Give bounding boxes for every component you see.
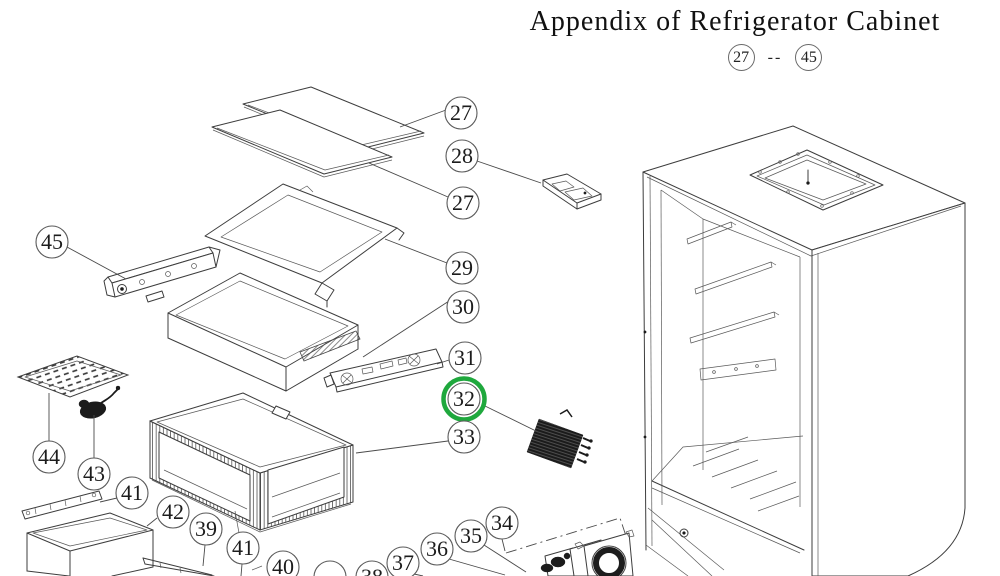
part-31-control-board	[324, 349, 443, 392]
cabinet-floor-vents	[652, 436, 804, 553]
callout-34[interactable]: 34	[486, 507, 518, 551]
leader-line	[147, 518, 157, 526]
part-41-rail-upper	[22, 491, 102, 519]
refrigerator-cabinet-drawing	[643, 126, 965, 576]
callout-number: 27	[452, 190, 474, 215]
leader-line	[449, 559, 505, 575]
callout-44[interactable]: 44	[33, 393, 65, 473]
leader-line	[100, 498, 117, 502]
callout-number: 44	[38, 444, 60, 469]
callout-circle	[314, 561, 346, 576]
leader-line	[477, 161, 541, 183]
part-32-evaporator	[527, 410, 593, 468]
callout-43[interactable]: 43	[78, 415, 110, 490]
leader-line	[67, 247, 126, 279]
callout-number: 40	[272, 554, 294, 576]
callout-33[interactable]: 33	[356, 421, 480, 453]
callout-number: 38	[361, 564, 383, 576]
callout-38[interactable]: 38	[356, 561, 388, 576]
cabinet-base	[646, 508, 724, 576]
callout-number: 39	[195, 516, 217, 541]
callout-31[interactable]: 31	[437, 342, 481, 374]
callout-number: 36	[426, 536, 448, 561]
callout-number: 42	[162, 499, 184, 524]
fan-assembly	[506, 518, 634, 576]
callout-number: 27	[450, 100, 472, 125]
parts-diagram-page: Appendix of Refrigerator Cabinet 27 -- 4…	[0, 0, 1000, 576]
leader-line	[203, 545, 205, 566]
callout-39[interactable]: 39	[190, 513, 222, 566]
callout-number: 41	[232, 535, 254, 560]
callout-number: 28	[451, 143, 473, 168]
leader-line	[400, 110, 446, 127]
leader-line	[356, 441, 448, 453]
part-44-grid-plate	[18, 356, 128, 397]
callout-45[interactable]: 45	[36, 226, 126, 279]
interior-shelf-rails	[687, 222, 779, 343]
callout-29[interactable]: 29	[385, 239, 478, 284]
leader-line	[485, 406, 538, 432]
callout-number: 35	[460, 523, 482, 548]
callout-28[interactable]: 28	[446, 140, 541, 183]
part-42-bin	[27, 513, 153, 576]
callout-number: 30	[452, 294, 474, 319]
callout-number: 33	[453, 424, 475, 449]
callout-number: 41	[121, 480, 143, 505]
leader-line	[369, 163, 448, 197]
callout-number: 37	[392, 550, 414, 575]
leader-line	[385, 239, 447, 263]
part-28-cover-board	[543, 174, 601, 209]
leader-line	[484, 545, 526, 572]
exploded-view-diagram: 2728272930313233454443414239414038373635…	[0, 0, 1000, 576]
callout-number: 45	[41, 229, 63, 254]
callout-number: 29	[451, 255, 473, 280]
callout-number: 32	[453, 386, 475, 411]
callout-number: 43	[83, 461, 105, 486]
callout-number: 34	[491, 510, 513, 535]
callout-42[interactable]: 42	[147, 496, 189, 528]
callout-number: 31	[454, 345, 476, 370]
callout-37[interactable]: 37	[387, 547, 423, 576]
back-wall-bracket	[700, 359, 776, 380]
leader-line	[502, 539, 505, 551]
callout-unlabeled[interactable]	[314, 561, 346, 576]
callout-40[interactable]: 40	[267, 551, 299, 576]
callout-27[interactable]: 27	[400, 97, 477, 129]
leader-line	[241, 564, 242, 576]
